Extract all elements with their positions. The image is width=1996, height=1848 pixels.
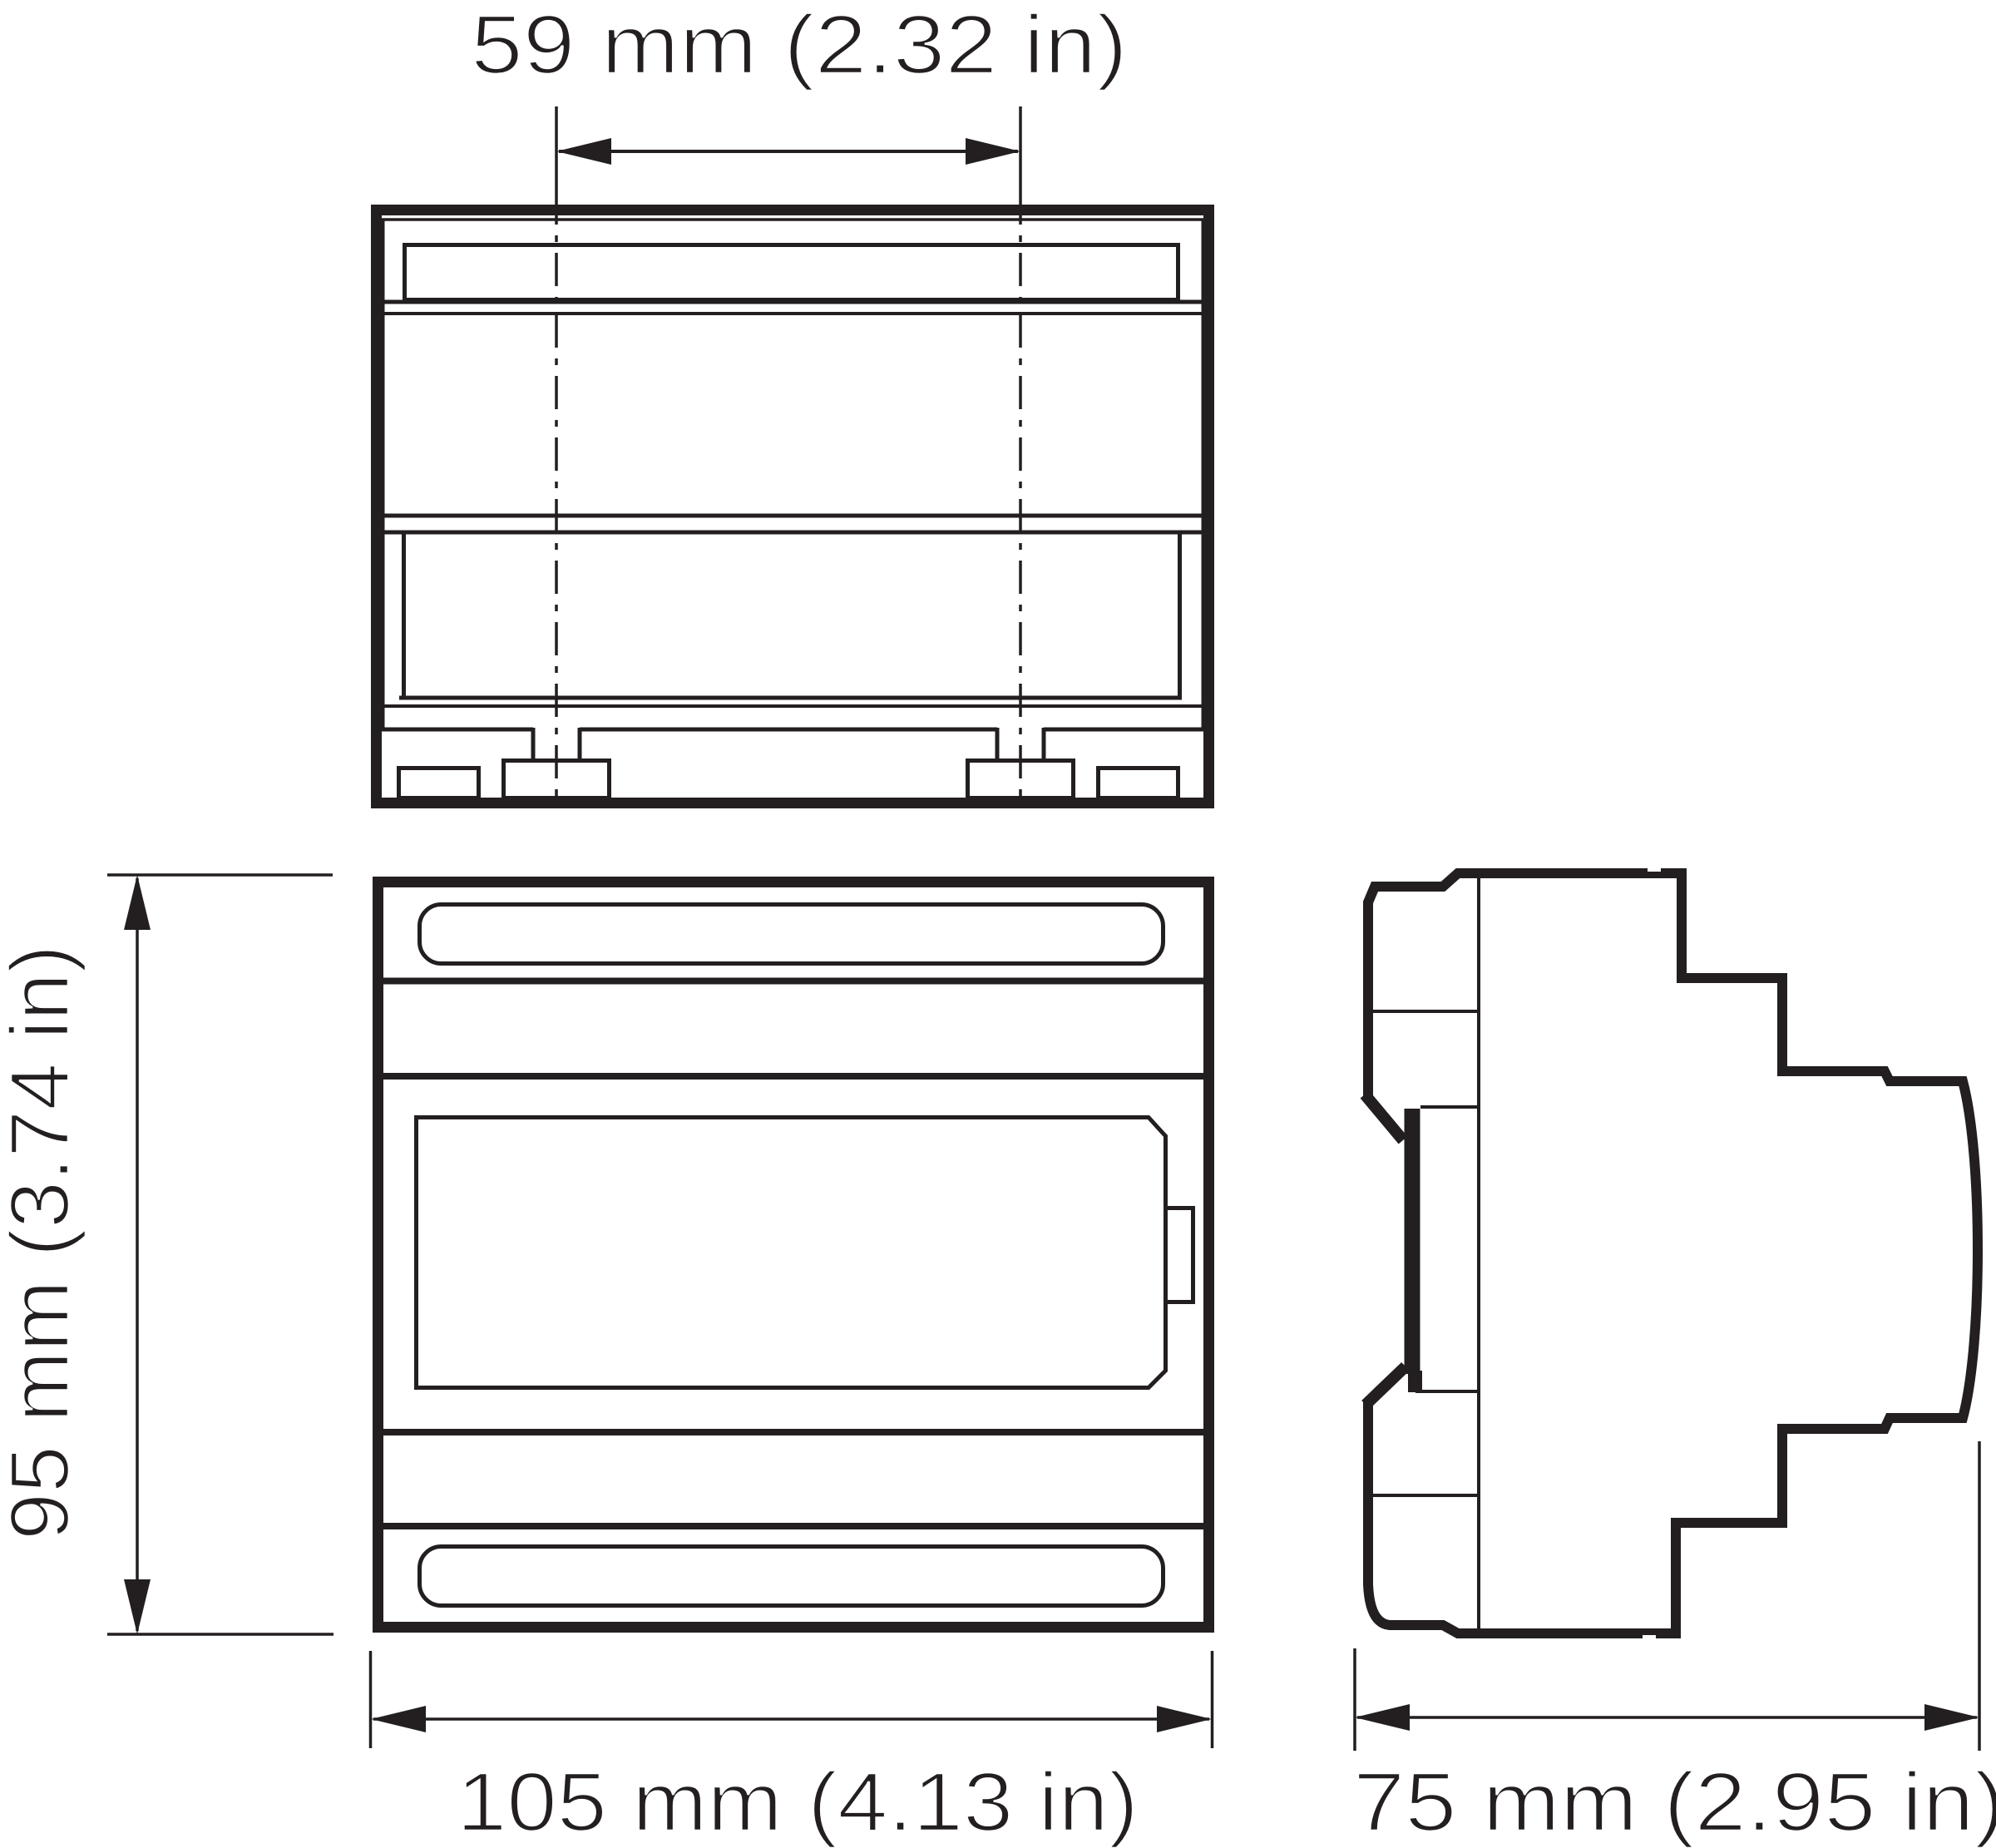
svg-text:59 mm (2.32 in): 59 mm (2.32 in) xyxy=(471,0,1128,91)
svg-text:95 mm (3.74 in): 95 mm (3.74 in) xyxy=(0,945,86,1540)
svg-text:75 mm (2.95 in): 75 mm (2.95 in) xyxy=(1353,1756,1996,1848)
svg-text:105 mm (4.13 in): 105 mm (4.13 in) xyxy=(457,1756,1139,1848)
